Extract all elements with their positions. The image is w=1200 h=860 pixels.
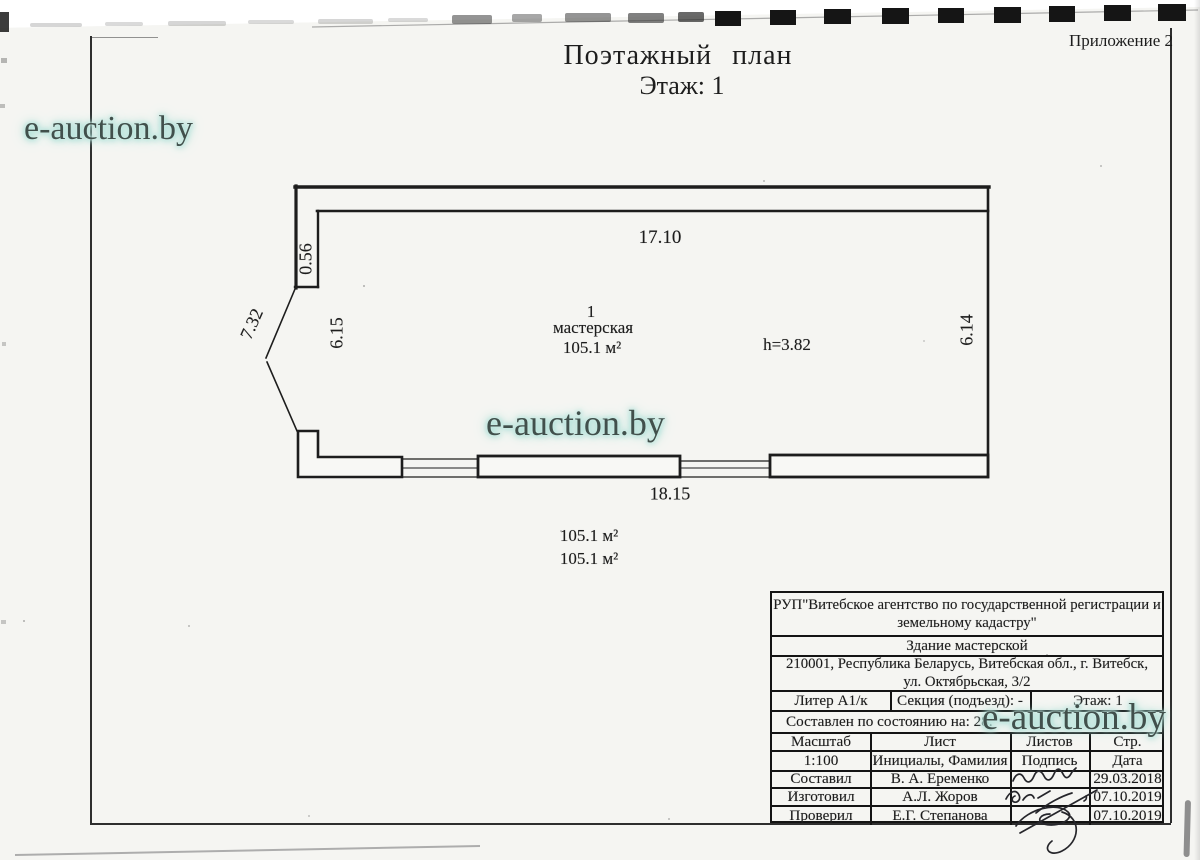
org-name-line2: земельному кадастру": [897, 614, 1036, 632]
dim-bottom: 18.15: [650, 484, 691, 505]
row-made-date: 07.10.2019: [1089, 787, 1166, 805]
scale-value: 1:100: [772, 750, 870, 770]
frame-top-tick: [90, 37, 158, 38]
row-made-name: А.Л. Жоров: [870, 787, 1010, 805]
paper-noise: [363, 285, 365, 287]
dim-side-right: 6.14: [957, 314, 978, 346]
row-checked-role: Проверил: [772, 805, 870, 825]
signature-header: Подпись: [1010, 750, 1089, 770]
area-note-2: 105.1 м²: [560, 549, 618, 569]
row-checked-name: Е.Г. Степанова: [870, 805, 1010, 825]
dim-niche: 0.56: [296, 243, 317, 275]
org-name-line1: РУП"Витебское агентство по государственн…: [773, 596, 1161, 614]
document-page: Приложение 2 Поэтажный план Этаж: 1 e-au…: [0, 0, 1200, 860]
room-name: мастерская: [553, 318, 633, 338]
org-name: РУП"Витебское агентство по государственн…: [772, 593, 1162, 635]
ceiling-height: h=3.82: [763, 335, 811, 355]
watermark-top-left: e-auction.by: [24, 110, 193, 148]
area-note-1: 105.1 м²: [560, 526, 618, 546]
watermark-bottom-right: e-auction.by: [982, 696, 1166, 739]
row-compiled-role: Составил: [772, 770, 870, 787]
right-edge-shadow: [1194, 0, 1200, 860]
annex-label: Приложение 2: [1069, 31, 1173, 51]
frame-left: [90, 36, 92, 823]
initials-header: Инициалы, Фамилия: [870, 750, 1010, 770]
frame-right: [1170, 28, 1172, 823]
liter-cell: Литер А1/к: [772, 690, 890, 710]
dim-diagonal-left: 7.32: [236, 305, 268, 342]
paper-top-edge: [0, 0, 1200, 28]
header-scale: Масштаб: [772, 732, 870, 750]
date-header: Дата: [1089, 750, 1166, 770]
floor-subtitle: Этаж: 1: [639, 71, 724, 101]
row-checked-date: 07.10.2019: [1089, 805, 1166, 825]
room-area: 105.1 м²: [563, 338, 621, 358]
watermark-center: e-auction.by: [486, 402, 665, 444]
row-made-role: Изготовил: [772, 787, 870, 805]
page-title: Поэтажный план: [563, 40, 792, 72]
dim-top: 17.10: [639, 227, 682, 249]
address-line1: 210001, Республика Беларусь, Витебская о…: [786, 655, 1148, 673]
building-name: Здание мастерской: [772, 635, 1162, 655]
row-compiled-name: В. А. Еременко: [870, 770, 1010, 787]
dim-side-left: 6.15: [327, 317, 348, 349]
address-line2: ул. Октябрьская, 3/2: [903, 673, 1030, 691]
row-compiled-date: 29.03.2018: [1089, 770, 1166, 787]
address: 210001, Республика Беларусь, Витебская о…: [772, 655, 1162, 690]
